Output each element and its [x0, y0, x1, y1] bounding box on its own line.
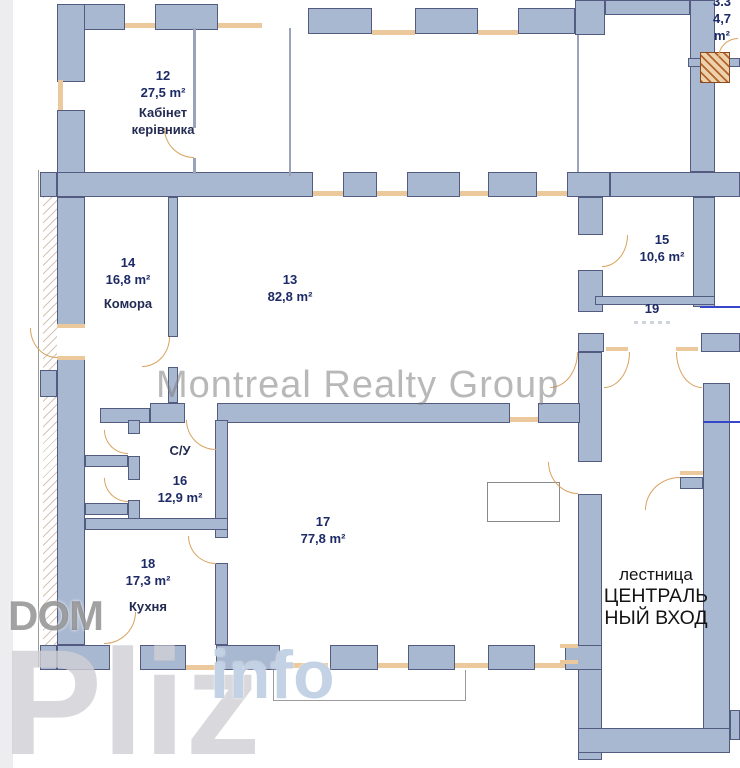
- room-name: С/У: [158, 443, 203, 460]
- room-15-label: 15 10,6 m²: [640, 232, 685, 266]
- room-name: Комора: [104, 296, 152, 313]
- wall-segment: [330, 645, 378, 670]
- wall-segment: [415, 8, 478, 34]
- partition-line: [577, 35, 579, 172]
- wall-segment: [40, 645, 57, 670]
- wall-segment: [343, 172, 377, 197]
- door-arc: [142, 337, 170, 367]
- window-marker: [460, 191, 488, 196]
- door-arc: [104, 430, 128, 454]
- partition-line: [193, 158, 196, 174]
- room-number: 13: [268, 272, 313, 289]
- annotation-line: [703, 421, 740, 423]
- wall-segment: [578, 197, 603, 235]
- door-sill: [676, 347, 698, 351]
- door-arc: [30, 328, 57, 358]
- site-boundary-line: [38, 170, 39, 667]
- window-marker: [377, 191, 407, 196]
- wall-segment: [578, 333, 604, 352]
- window-marker: [313, 191, 343, 196]
- wall-segment: [578, 270, 603, 312]
- watermark-montreal: Montreal Realty Group: [156, 364, 559, 407]
- room-name: Кабінет керівника: [132, 105, 195, 139]
- room-area: 27,5 m²: [132, 85, 195, 102]
- door-sill: [57, 356, 85, 360]
- room-area: 10,6 m²: [640, 249, 685, 266]
- room-number: 17: [301, 514, 346, 531]
- stair-text: лестница: [604, 564, 708, 585]
- floor-plan: 12 27,5 m² Кабінет керівника 14 16,8 m² …: [0, 0, 740, 768]
- wall-segment: [730, 710, 740, 740]
- partition-line: [289, 28, 291, 176]
- room-16-label: С/У 16 12,9 m²: [158, 443, 203, 507]
- door-arc: [188, 536, 216, 564]
- wall-segment: [128, 456, 140, 480]
- wall-segment: [680, 477, 703, 489]
- room-number: 18: [126, 556, 171, 573]
- room-area: 77,8 m²: [301, 531, 346, 548]
- entrance-text: ЦЕНТРАЛЬ НЫЙ ВХОД: [604, 585, 708, 629]
- door-arc: [604, 352, 630, 388]
- window-marker: [58, 80, 63, 110]
- door-arc: [104, 478, 128, 502]
- window-marker: [125, 23, 155, 28]
- door-sill: [606, 347, 628, 351]
- wall-segment: [567, 172, 610, 197]
- porch-outline: [273, 700, 466, 701]
- wall-segment: [57, 172, 313, 197]
- window-marker: [455, 663, 488, 668]
- room-name: Кухня: [126, 599, 171, 616]
- wall-segment: [128, 500, 140, 520]
- wall-segment: [565, 645, 602, 670]
- wall-segment: [701, 333, 740, 352]
- wall-segment: [578, 728, 730, 753]
- room-area: 4,7 m²: [713, 11, 731, 45]
- wall-segment: [85, 518, 228, 530]
- wall-segment: [140, 645, 186, 670]
- room-12-label: 12 27,5 m² Кабінет керівника: [132, 68, 195, 139]
- wall-segment: [488, 172, 537, 197]
- wall-segment: [40, 172, 57, 197]
- room-3-3-label: 3.3 4,7 m²: [713, 0, 731, 45]
- wall-segment: [155, 4, 218, 30]
- wall-segment: [693, 197, 715, 307]
- room-number: 3.3: [713, 0, 731, 11]
- window-marker: [378, 663, 408, 668]
- room-number: 14: [104, 255, 152, 272]
- wall-segment: [690, 0, 715, 172]
- room-number: 15: [640, 232, 685, 249]
- door-arc: [602, 235, 628, 267]
- wall-segment: [308, 8, 372, 34]
- window-marker: [372, 30, 415, 35]
- room-area: 16,8 m²: [104, 272, 152, 289]
- window-marker: [478, 30, 518, 35]
- wall-segment: [605, 0, 690, 15]
- wall-segment: [215, 563, 228, 645]
- wall-segment: [518, 8, 575, 34]
- wall-segment: [57, 358, 85, 645]
- room-17-label: 17 77,8 m²: [301, 514, 346, 548]
- scan-edge-strip: [0, 0, 13, 768]
- wall-segment: [408, 645, 455, 670]
- window-marker: [186, 665, 216, 670]
- wall-segment: [407, 172, 460, 197]
- wall-segment: [578, 494, 602, 760]
- window-marker: [560, 644, 578, 648]
- wall-segment: [575, 0, 605, 35]
- wall-segment: [217, 403, 510, 423]
- wall-segment: [57, 110, 85, 176]
- wall-segment: [40, 370, 57, 397]
- window-marker: [218, 23, 262, 28]
- room-area: 12,9 m²: [158, 490, 203, 507]
- room-number: 12: [132, 68, 195, 85]
- door-arc: [550, 352, 578, 388]
- wall-segment: [538, 403, 580, 423]
- door-arc: [645, 477, 680, 510]
- room-18-label: 18 17,3 m² Кухня: [126, 556, 171, 616]
- wall-segment: [57, 645, 110, 670]
- wall-segment: [578, 352, 602, 462]
- door-arc: [104, 612, 136, 644]
- room-number: 16: [158, 473, 203, 490]
- room-14-label: 14 16,8 m² Комора: [104, 255, 152, 313]
- wall-segment: [100, 408, 150, 423]
- wall-segment: [85, 455, 128, 467]
- stairwell-label: лестница ЦЕНТРАЛЬ НЫЙ ВХОД: [604, 564, 708, 629]
- window-marker: [510, 417, 538, 422]
- room-19-label: 19: [645, 301, 659, 318]
- door-sill: [57, 324, 85, 328]
- strip-marking: [634, 321, 672, 324]
- window-marker: [280, 663, 328, 668]
- wall-segment: [168, 197, 178, 337]
- window-marker: [560, 660, 578, 664]
- window-marker: [680, 471, 703, 475]
- wall-segment: [57, 197, 85, 328]
- door-arc: [676, 352, 702, 388]
- wall-segment: [150, 403, 185, 423]
- annotation-line: [700, 306, 740, 308]
- porch-outline: [465, 670, 466, 701]
- wall-segment: [168, 367, 178, 403]
- shaft-outline: [487, 482, 560, 522]
- wall-segment: [85, 503, 128, 515]
- room-area: 17,3 m²: [126, 573, 171, 590]
- wall-segment: [488, 645, 535, 670]
- wall-segment: [610, 172, 740, 197]
- wall-segment: [57, 4, 85, 82]
- room-13-label: 13 82,8 m²: [268, 272, 313, 306]
- window-marker: [537, 191, 567, 196]
- room-area: 82,8 m²: [268, 289, 313, 306]
- wall-segment: [128, 420, 140, 434]
- wall-segment: [216, 645, 280, 670]
- porch-outline: [273, 670, 274, 701]
- room-number: 19: [645, 301, 659, 318]
- hatch-strip: [43, 197, 57, 645]
